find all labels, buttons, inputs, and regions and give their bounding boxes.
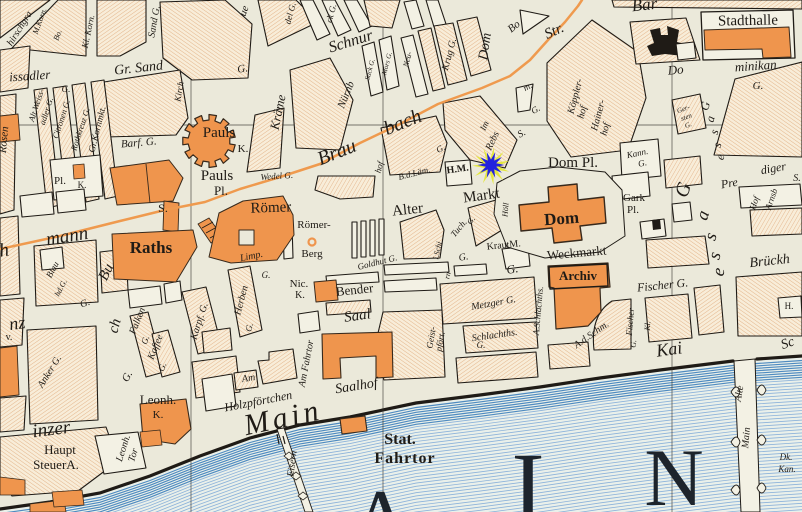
svg-text:Kan.: Kan. (777, 464, 795, 474)
svg-text:G.: G. (629, 340, 639, 349)
svg-text:Kl.: Kl. (643, 321, 653, 332)
svg-text:Haupt: Haupt (44, 442, 76, 457)
svg-text:G.: G. (458, 251, 469, 264)
svg-text:Berg: Berg (301, 248, 323, 260)
svg-text:Bär: Bär (631, 0, 659, 15)
svg-text:Dk.: Dk. (779, 452, 793, 462)
svg-text:Do: Do (666, 61, 685, 77)
svg-text:Pl.: Pl. (54, 175, 66, 187)
svg-text:Gark: Gark (623, 192, 645, 204)
svg-text:Nic.: Nic. (290, 278, 309, 290)
svg-text:Höll: Höll (500, 202, 510, 219)
svg-text:Stat.: Stat. (384, 431, 416, 448)
svg-text:G.: G. (505, 261, 519, 277)
svg-text:v.: v. (6, 332, 13, 343)
svg-text:G.: G. (236, 62, 248, 75)
svg-text:Kai: Kai (654, 337, 684, 361)
svg-text:G.: G. (477, 340, 486, 350)
svg-text:SteuerA.: SteuerA. (33, 457, 79, 472)
svg-text:K.: K. (78, 180, 87, 190)
svg-text:G.: G. (262, 270, 271, 280)
svg-text:Dom: Dom (544, 208, 580, 229)
svg-text:G.: G. (62, 84, 71, 94)
svg-text:K.: K. (153, 409, 164, 421)
svg-text:S.: S. (158, 201, 168, 215)
svg-text:Römer-: Römer- (297, 219, 331, 231)
svg-text:Main: Main (740, 427, 753, 450)
svg-text:N: N (644, 432, 703, 512)
svg-text:Fahrtor: Fahrtor (374, 450, 435, 467)
svg-text:Raths: Raths (130, 238, 173, 257)
svg-text:Pauls: Pauls (201, 168, 234, 184)
svg-text:Dom Pl.: Dom Pl. (548, 155, 598, 171)
svg-text:nz: nz (8, 312, 27, 334)
svg-text:issadler: issadler (9, 67, 52, 85)
svg-text:Pl.: Pl. (627, 204, 639, 216)
svg-text:Pl.: Pl. (214, 183, 228, 198)
svg-text:A: A (350, 473, 411, 512)
svg-text:Stadthalle: Stadthalle (718, 12, 779, 29)
svg-text:Pauls: Pauls (203, 125, 236, 141)
svg-text:I: I (511, 432, 544, 512)
svg-text:K.: K. (295, 290, 305, 301)
svg-text:H.: H. (785, 301, 794, 311)
svg-text:Römer: Römer (250, 199, 291, 216)
svg-text:Alter: Alter (391, 200, 423, 219)
svg-text:Leonh.: Leonh. (140, 392, 176, 407)
svg-text:Archiv: Archiv (559, 268, 598, 283)
svg-text:minikan: minikan (734, 57, 777, 75)
svg-text:K.: K. (238, 143, 249, 155)
svg-text:G.: G. (753, 80, 764, 92)
svg-text:S.: S. (793, 173, 801, 184)
